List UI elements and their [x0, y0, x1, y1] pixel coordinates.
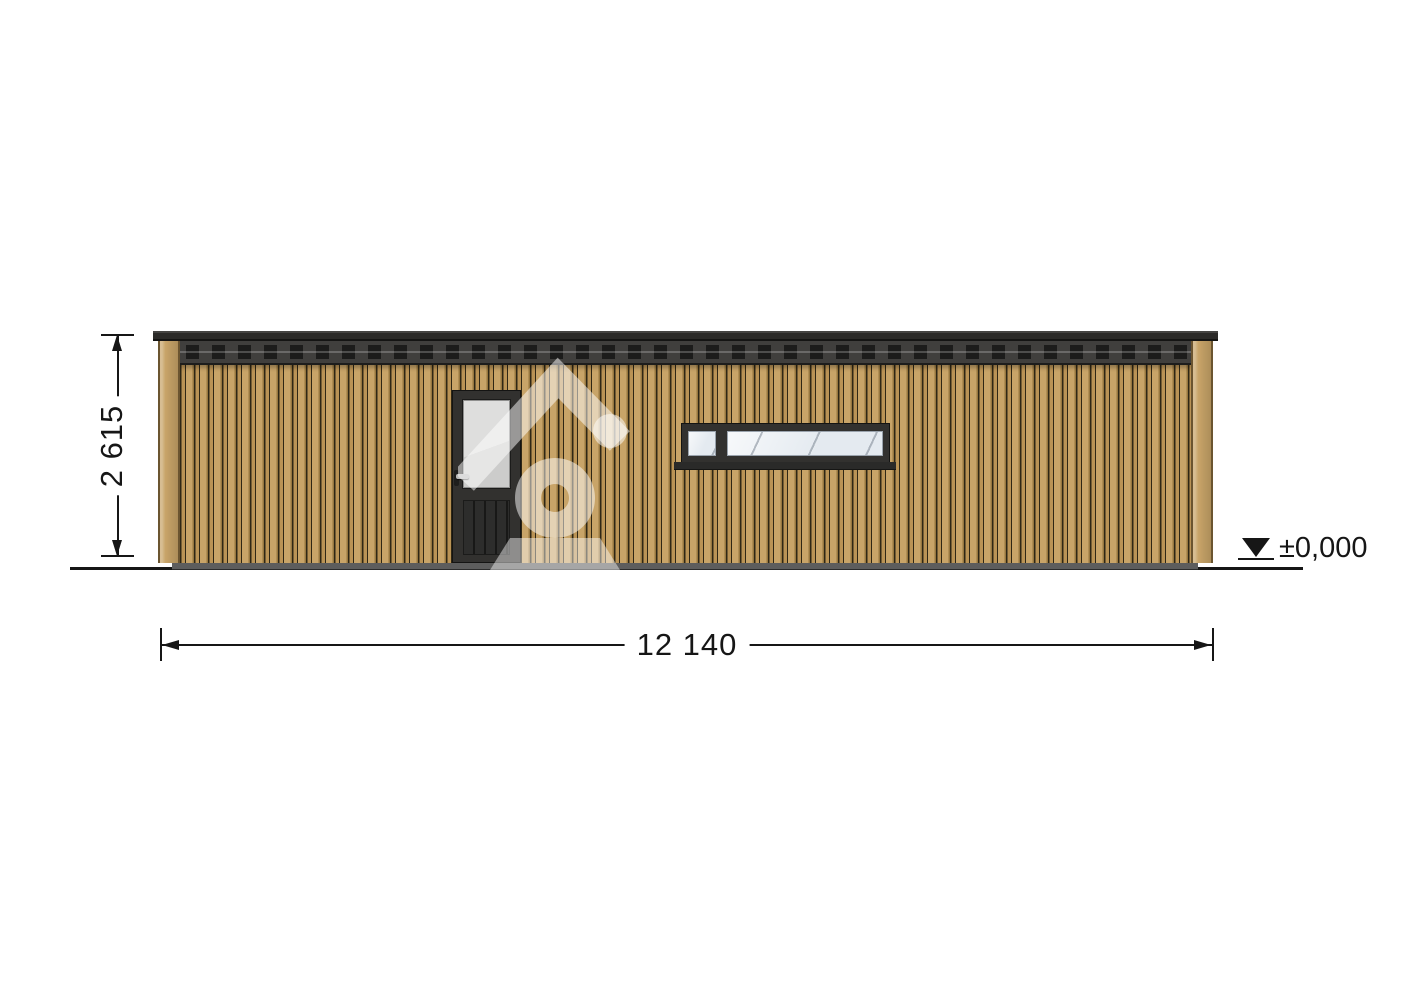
door-handle-lever — [456, 474, 469, 479]
level-marker-underline — [1238, 558, 1274, 560]
fascia-vent-band — [180, 341, 1191, 365]
dim-arrow-left-icon — [162, 640, 179, 650]
corner-trim-left — [158, 341, 180, 563]
dim-arrow-up-icon — [112, 335, 122, 351]
window-pane-long — [727, 431, 883, 456]
strip-window — [681, 423, 890, 463]
height-dimension-label: 2 615 — [94, 397, 130, 496]
base-strip — [172, 563, 1198, 570]
door-handle — [454, 470, 469, 486]
door-rail — [463, 488, 510, 500]
roof-cap — [153, 331, 1218, 341]
width-dimension-label: 12 140 — [625, 627, 750, 663]
ground-level-label: ±0,000 — [1279, 532, 1368, 565]
window-pane-small — [688, 431, 716, 456]
door-glass-pane — [463, 400, 510, 488]
level-marker-triangle-icon — [1242, 538, 1270, 557]
window-sill — [674, 462, 896, 470]
dim-arrow-down-icon — [112, 540, 122, 556]
elevation-drawing: 2 615 12 140 ±0,000 — [0, 0, 1412, 1000]
dim-arrow-right-icon — [1194, 640, 1211, 650]
corner-trim-right — [1191, 341, 1213, 563]
door-lower-panel — [463, 500, 510, 555]
window-mullion — [716, 431, 727, 456]
